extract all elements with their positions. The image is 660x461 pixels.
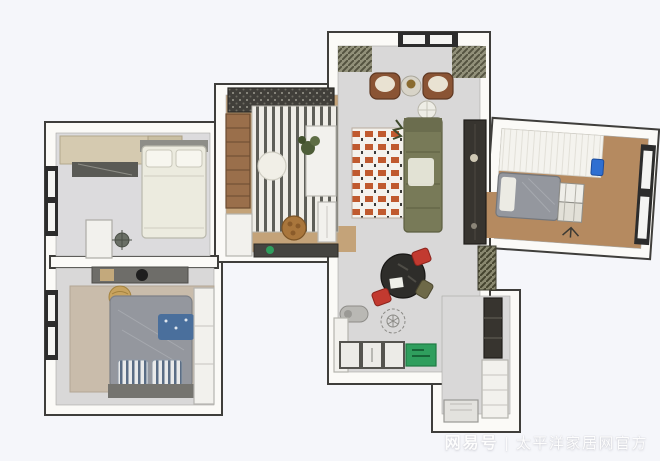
round-table-white — [258, 152, 286, 180]
dresser-box — [100, 269, 114, 281]
armchair — [423, 73, 453, 99]
mattress-pillow — [499, 177, 516, 212]
side-table-decor — [407, 80, 416, 89]
door-threshold — [444, 400, 478, 422]
steps — [558, 183, 585, 223]
pillow — [176, 150, 202, 167]
tv-cabinet — [464, 120, 486, 244]
tea-table-wood — [282, 216, 306, 240]
cabinet-low-white — [226, 214, 252, 256]
bed-headboard — [108, 384, 194, 398]
sofa-throw — [408, 158, 434, 186]
checkered-rug — [352, 128, 404, 218]
pillow-striped — [152, 360, 182, 386]
floorplan-render — [0, 0, 660, 461]
pillow — [146, 150, 172, 167]
floor-doorway-study — [338, 226, 356, 252]
wardrobe — [60, 136, 148, 164]
watermark: 网易号|太平洋家居网官方 — [445, 429, 648, 453]
watermark-separator: | — [505, 435, 510, 452]
wall-room-divider-left — [50, 256, 218, 268]
kitchen-unit — [340, 342, 360, 368]
chair-blue — [591, 159, 604, 176]
watermark-publisher: 太平洋家居网官方 — [516, 435, 648, 452]
dresser-speaker — [136, 269, 148, 281]
wallpaper-wall — [499, 129, 604, 178]
window-living-top — [398, 32, 458, 47]
watermark-brand: 网易号 — [445, 435, 499, 452]
kitchen-unit — [384, 342, 404, 368]
armchair — [370, 73, 400, 99]
wardrobe-white — [194, 288, 214, 404]
table-paper — [389, 277, 403, 289]
shoe-cabinet — [482, 360, 508, 418]
kitchen — [340, 342, 436, 368]
curtain-left — [338, 46, 372, 72]
screenshot-canvas: 网易号|太平洋家居网官方 — [0, 0, 660, 461]
window-bedroom-small — [45, 166, 58, 236]
pillow-striped — [118, 360, 148, 386]
desk-white — [306, 126, 336, 196]
window-bedroom-master — [45, 290, 58, 360]
curtain-right — [452, 46, 486, 78]
desk — [86, 220, 112, 258]
bedroom-master — [70, 267, 214, 404]
hatched-wall-block — [478, 246, 496, 290]
counter-item-green — [266, 246, 274, 254]
glass-partition — [484, 298, 502, 358]
